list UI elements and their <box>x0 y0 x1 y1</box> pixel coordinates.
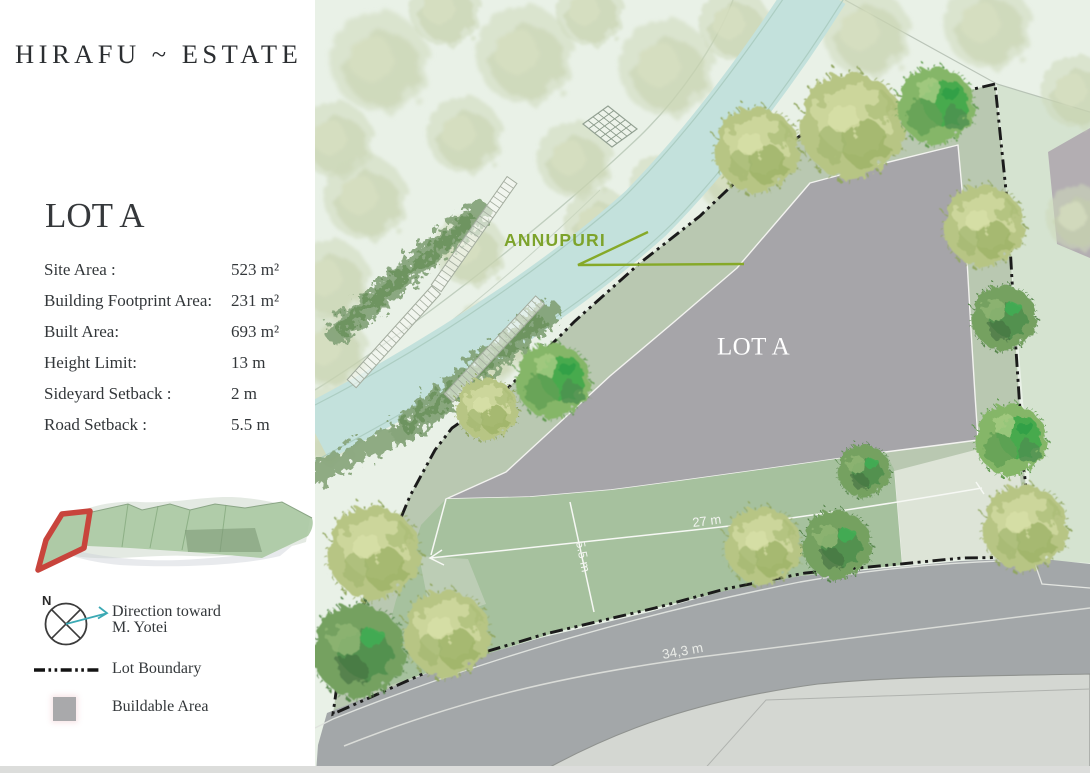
svg-text:ANNUPURI: ANNUPURI <box>504 230 606 250</box>
svg-text:LOT A: LOT A <box>717 334 790 361</box>
